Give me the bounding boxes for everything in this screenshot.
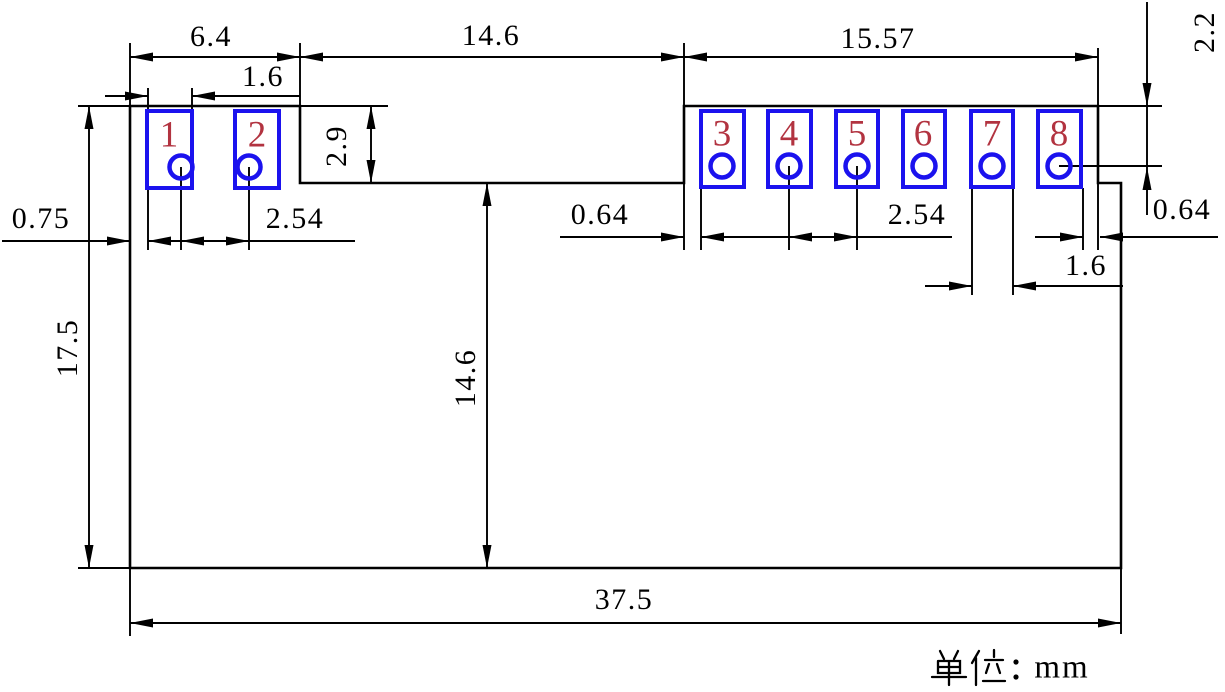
pad-2-number: 2 xyxy=(248,117,267,154)
pad-4-number: 4 xyxy=(780,116,799,153)
technical-drawing-page: 6.4 14.6 15.57 1.6 2.9 0.75 2.54 0.64 2.… xyxy=(0,0,1225,692)
units-cjk-art xyxy=(932,650,1019,685)
dim-label-2.2: 2.2 xyxy=(1190,11,1220,53)
dim-label-2.54-right: 2.54 xyxy=(888,200,947,230)
pad-7-number: 7 xyxy=(983,116,1002,153)
pad-3-number: 3 xyxy=(713,116,732,153)
dim-label-2.54-left: 2.54 xyxy=(266,204,325,234)
dim-label-6.4: 6.4 xyxy=(190,22,232,52)
extension-lines xyxy=(78,2,1162,636)
pad-holes xyxy=(170,155,1071,179)
dim-label-14.6-vertical: 14.6 xyxy=(451,349,481,408)
dim-label-17.5: 17.5 xyxy=(53,319,83,378)
pad-8-number: 8 xyxy=(1050,116,1069,153)
dim-label-14.6-top: 14.6 xyxy=(462,21,521,51)
dim-label-0.75: 0.75 xyxy=(12,204,71,234)
dim-label-37.5: 37.5 xyxy=(595,585,654,615)
pad-1-number: 1 xyxy=(160,117,179,154)
dimension-lines xyxy=(2,57,1218,623)
pad-6-number: 6 xyxy=(914,116,933,153)
dim-label-1.6-left: 1.6 xyxy=(242,62,284,92)
units-label: mm xyxy=(1034,652,1089,685)
dim-label-15.57: 15.57 xyxy=(841,24,916,54)
pad-5-number: 5 xyxy=(848,116,867,153)
pad-7-hole xyxy=(981,155,1004,178)
dim-label-0.64-right: 0.64 xyxy=(1153,195,1212,225)
pad-3-hole xyxy=(711,155,734,178)
dim-label-2.9: 2.9 xyxy=(322,125,352,167)
pad-6-hole xyxy=(913,155,936,178)
pad-outlines xyxy=(147,111,1081,188)
dim-label-1.6-right: 1.6 xyxy=(1065,251,1107,281)
dim-label-0.64-left: 0.64 xyxy=(571,200,630,230)
